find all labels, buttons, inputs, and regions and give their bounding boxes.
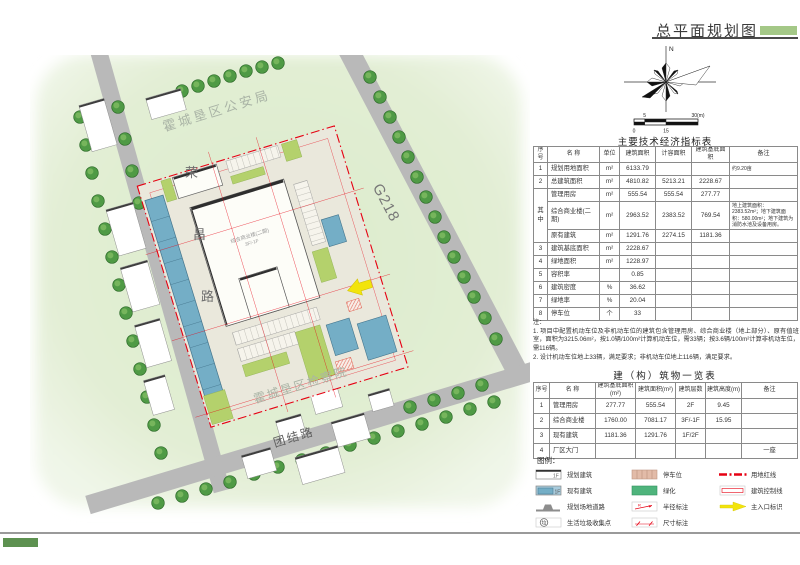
cell: 7 — [534, 295, 548, 308]
scale-bar: 0 5 15 30(m) — [628, 110, 718, 136]
col-header: 序号 — [534, 383, 550, 399]
cell — [692, 269, 730, 282]
trash-collection-icon: 垃 — [535, 517, 563, 528]
col-header: 计容面积 — [656, 147, 692, 163]
table-row: 3 现有建筑 1181.36 1291.76 1F/2F — [534, 429, 798, 444]
legend: 1F 规划建筑 停车位 用地红线 1F 现有建筑 — [535, 466, 799, 530]
cell — [656, 163, 692, 176]
col-header: 建筑高度(m) — [706, 383, 742, 399]
legend-item-planned-building: 1F 规划建筑 — [535, 469, 631, 480]
col-header: 建筑面积 — [620, 147, 656, 163]
buildings-table: 序号 名 称 建筑基底面积(m²) 建筑面积(m²) 建筑层数 建筑高度(m) … — [533, 382, 798, 459]
cell — [730, 243, 798, 256]
cell: 6 — [534, 282, 548, 295]
svg-text:R: R — [638, 502, 641, 507]
cell: m² — [600, 189, 620, 202]
parking-icon — [631, 469, 659, 480]
cell: 2963.52 — [620, 202, 656, 230]
cell — [692, 243, 730, 256]
cell — [742, 414, 798, 429]
col-header: 备注 — [742, 383, 798, 399]
cell: m² — [600, 163, 620, 176]
radius-annotation-icon: R — [631, 501, 659, 512]
north-label: N — [669, 46, 674, 53]
cell: 7081.17 — [636, 414, 676, 429]
cell — [676, 444, 706, 459]
cell: 5213.21 — [656, 176, 692, 189]
cell — [730, 230, 798, 243]
cell: 2228.67 — [620, 243, 656, 256]
legend-label: 建筑控制线 — [751, 486, 782, 495]
cell: 1181.36 — [692, 230, 730, 243]
cell — [706, 429, 742, 444]
table-row: 2 综合商业楼 1760.00 7081.17 3F/-1F 15.95 — [534, 414, 798, 429]
north-compass: N — [622, 40, 722, 116]
cell: 原有建筑 — [548, 230, 600, 243]
cell: % — [600, 295, 620, 308]
cell: m² — [600, 243, 620, 256]
cell — [692, 163, 730, 176]
cell — [730, 282, 798, 295]
cell: 555.54 — [656, 189, 692, 202]
cell: 1291.76 — [620, 230, 656, 243]
cell: 综合商业楼(二期) — [548, 202, 600, 230]
cell: 2274.15 — [656, 230, 692, 243]
col-header: 建筑层数 — [676, 383, 706, 399]
cell: m² — [600, 176, 620, 189]
cell: 20.04 — [620, 295, 656, 308]
col-header: 名 称 — [550, 383, 596, 399]
legend-label: 规划场地道路 — [567, 502, 605, 511]
cell: 一座 — [742, 444, 798, 459]
cell: 2228.67 — [692, 176, 730, 189]
note-item: 1. 项目中配置机动车位及非机动车位的建筑包含管理用房、综合商业楼（地上部分）、… — [533, 328, 799, 354]
cell: 1 — [534, 163, 548, 176]
table-row: 其 中 管理用房 m² 555.54 555.54 277.77 — [534, 189, 798, 202]
legend-item-control-line: 建筑控制线 — [719, 485, 799, 496]
site-plan-map: 综合商业楼(二期) 3F/-1F 霍城垦区公安局 霍城垦区检察院 荣 昌 路 — [30, 55, 530, 523]
cell: 555.54 — [636, 399, 676, 414]
road-rongchang-label: 昌 — [193, 227, 206, 242]
cell: 4810.82 — [620, 176, 656, 189]
cell — [656, 269, 692, 282]
table-header-row: 序号 名 称 建筑基底面积(m²) 建筑面积(m²) 建筑层数 建筑高度(m) … — [534, 383, 798, 399]
cell — [742, 429, 798, 444]
legend-item-red-line: 用地红线 — [719, 469, 799, 480]
cell: 769.54 — [692, 202, 730, 230]
cell: % — [600, 282, 620, 295]
cell: 现有建筑 — [550, 429, 596, 444]
cell — [600, 269, 620, 282]
cell: 建筑密度 — [548, 282, 600, 295]
cell: 3 — [534, 429, 550, 444]
notes-label: 注： — [533, 319, 799, 328]
cell: 2 — [534, 176, 548, 189]
table-row: 5 容积率 0.85 — [534, 269, 798, 282]
cell: 规划用地面积 — [548, 163, 600, 176]
cell: 容积率 — [548, 269, 600, 282]
table-row: 综合商业楼(二期) m² 2963.52 2383.52 769.54 地上建筑… — [534, 202, 798, 230]
notes: 注： 1. 项目中配置机动车位及非机动车位的建筑包含管理用房、综合商业楼（地上部… — [533, 319, 799, 362]
cell — [692, 256, 730, 269]
cell: 1 — [534, 399, 550, 414]
road-rongchang-label: 路 — [201, 289, 214, 304]
legend-label: 尺寸标注 — [663, 518, 688, 527]
legend-label: 主入口标识 — [751, 502, 782, 511]
cell: m² — [600, 230, 620, 243]
site-road-icon — [535, 501, 563, 512]
svg-text:1F: 1F — [555, 489, 561, 495]
cell: 管理用房 — [550, 399, 596, 414]
table-row: 4 厂区大门 一座 — [534, 444, 798, 459]
table-row: 2 总建筑面积 m² 4810.82 5213.21 2228.67 — [534, 176, 798, 189]
legend-item-existing-building: 1F 现有建筑 — [535, 485, 631, 496]
group-label-cell: 其 中 — [534, 189, 548, 243]
cell: 绿地面积 — [548, 256, 600, 269]
control-line-icon — [719, 485, 747, 496]
cell: 2F — [676, 399, 706, 414]
cell: 2 — [534, 414, 550, 429]
legend-item-main-entrance: 主入口标识 — [719, 501, 799, 512]
legend-label: 规划建筑 — [567, 470, 592, 479]
dimension-annotation-icon — [631, 517, 659, 528]
cell — [656, 282, 692, 295]
svg-text:垃: 垃 — [541, 518, 546, 526]
legend-label: 用地红线 — [751, 470, 776, 479]
cell: 6133.79 — [620, 163, 656, 176]
cell: 9.45 — [706, 399, 742, 414]
sheet-bottom-rule — [0, 532, 800, 534]
note-item: 2. 设计机动车位地上33辆，满足要求；非机动车位地上116辆，满足要求。 — [533, 354, 799, 363]
cell: 277.77 — [692, 189, 730, 202]
table-row: 3 建筑基底面积 m² 2228.67 — [534, 243, 798, 256]
table-row: 1 规划用地面积 m² 6133.79 约9.20亩 — [534, 163, 798, 176]
cell: 建筑基底面积 — [548, 243, 600, 256]
cell: 1181.36 — [596, 429, 636, 444]
col-header: 备注 — [730, 147, 798, 163]
legend-label: 现有建筑 — [567, 486, 592, 495]
greenery-icon — [631, 485, 659, 496]
title-accent-block — [760, 26, 797, 35]
legend-title: 图例： — [537, 455, 560, 466]
cell — [730, 295, 798, 308]
cell: 绿地率 — [548, 295, 600, 308]
cell — [730, 256, 798, 269]
legend-label: 绿化 — [663, 486, 676, 495]
cell: 地上建筑面积：2383.52m²；地下建筑面积：580.00m²；地下建筑为消防… — [730, 202, 798, 230]
cell: 1F/2F — [676, 429, 706, 444]
table-row: 1 管理用房 277.77 555.54 2F 9.45 — [534, 399, 798, 414]
cell — [596, 444, 636, 459]
scale-label-30m: 30(m) — [691, 113, 704, 119]
road-rongchang-label: 荣 — [185, 165, 198, 180]
legend-label: 生活垃圾收集点 — [567, 518, 611, 527]
table-header-row: 序号 名 称 单位 建筑面积 计容面积 建筑基底面积 备注 — [534, 147, 798, 163]
cell: m² — [600, 256, 620, 269]
buildings-table-title: 建（构）筑物一览表 — [533, 368, 797, 382]
table-row: 6 建筑密度 % 36.62 — [534, 282, 798, 295]
indicator-table: 序号 名 称 单位 建筑面积 计容面积 建筑基底面积 备注 1 规划用地面积 m… — [533, 146, 798, 321]
main-entrance-icon — [719, 501, 747, 512]
legend-item-site-road: 规划场地道路 — [535, 501, 631, 512]
col-header: 名 称 — [548, 147, 600, 163]
cell: 管理用房 — [548, 189, 600, 202]
cell: 1228.97 — [620, 256, 656, 269]
cell: 36.62 — [620, 282, 656, 295]
legend-item-parking: 停车位 — [631, 469, 719, 480]
drawing-sheet: 综合商业楼(二期) 3F/-1F 霍城垦区公安局 霍城垦区检察院 荣 昌 路 — [0, 0, 800, 565]
col-header: 建筑基底面积 — [692, 147, 730, 163]
svg-text:1F: 1F — [553, 473, 559, 479]
cell — [730, 176, 798, 189]
cell — [742, 399, 798, 414]
legend-label: 半径标注 — [663, 502, 688, 511]
cell — [706, 444, 742, 459]
cell: 3 — [534, 243, 548, 256]
cell: 3F/-1F — [676, 414, 706, 429]
sheet-corner-green-block — [3, 538, 38, 547]
cell: 0.85 — [620, 269, 656, 282]
scale-label-5: 5 — [643, 113, 646, 119]
cell: 1760.00 — [596, 414, 636, 429]
table-row: 原有建筑 m² 1291.76 2274.15 1181.36 — [534, 230, 798, 243]
existing-building-icon: 1F — [535, 485, 563, 496]
cell — [692, 295, 730, 308]
cell — [656, 295, 692, 308]
cell: 综合商业楼 — [550, 414, 596, 429]
legend-item-green: 绿化 — [631, 485, 719, 496]
legend-label: 停车位 — [663, 470, 682, 479]
table-row: 4 绿地面积 m² 1228.97 — [534, 256, 798, 269]
cell: 总建筑面积 — [548, 176, 600, 189]
cell: 277.77 — [596, 399, 636, 414]
cell — [730, 269, 798, 282]
col-header: 建筑基底面积(m²) — [596, 383, 636, 399]
cell: 1291.76 — [636, 429, 676, 444]
legend-item-trash-point: 垃 生活垃圾收集点 — [535, 517, 631, 528]
cell: 4 — [534, 256, 548, 269]
cell — [656, 256, 692, 269]
cell: m² — [600, 202, 620, 230]
cell — [692, 282, 730, 295]
cell: 约9.20亩 — [730, 163, 798, 176]
col-header: 建筑面积(m²) — [636, 383, 676, 399]
cell: 5 — [534, 269, 548, 282]
col-header: 单位 — [600, 147, 620, 163]
cell: 555.54 — [620, 189, 656, 202]
red-line-icon — [719, 469, 747, 480]
cell: 2383.52 — [656, 202, 692, 230]
cell — [730, 189, 798, 202]
cell — [656, 243, 692, 256]
legend-item-dimension: 尺寸标注 — [631, 517, 719, 528]
cell: 15.95 — [706, 414, 742, 429]
col-header: 序号 — [534, 147, 548, 163]
legend-item-radius: R 半径标注 — [631, 501, 719, 512]
title-underline — [652, 37, 798, 39]
planned-building-icon: 1F — [535, 469, 563, 480]
table-row: 7 绿地率 % 20.04 — [534, 295, 798, 308]
cell — [636, 444, 676, 459]
